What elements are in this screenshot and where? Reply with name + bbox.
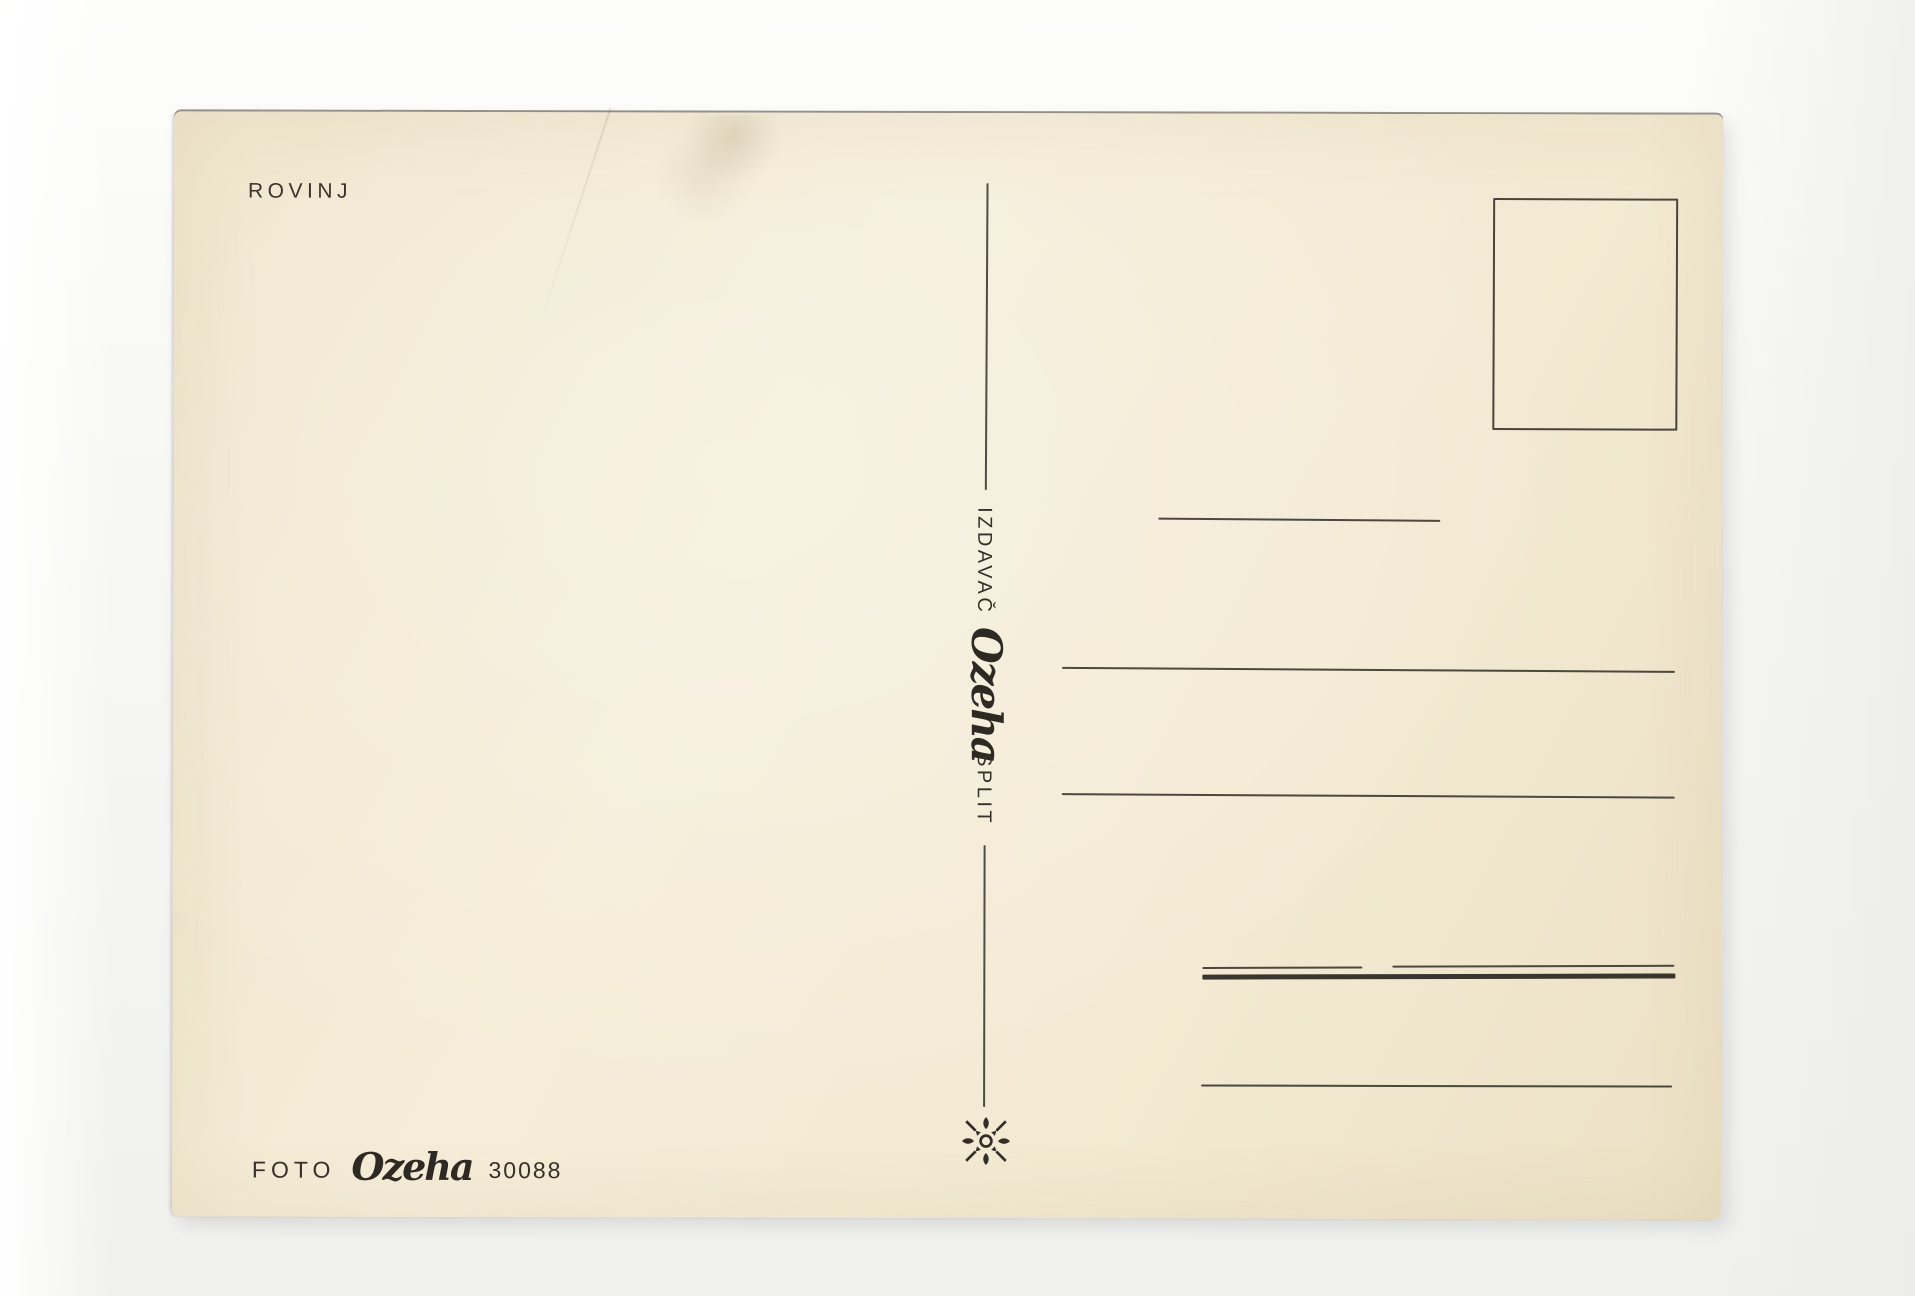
photo-credit-brand-logo: Ozeha	[351, 1144, 472, 1189]
postcard-back: ROVINJ IZDAVAČ Ozeha SPLIT	[172, 111, 1723, 1219]
divider-line-top	[985, 183, 989, 490]
scanner-background: ROVINJ IZDAVAČ Ozeha SPLIT	[0, 0, 1915, 1296]
address-line-thin-right	[1392, 965, 1674, 968]
stamp-box	[1492, 198, 1678, 431]
address-line-short	[1158, 518, 1440, 522]
photo-credit-number: 30088	[488, 1157, 562, 1184]
address-line-bottom	[1201, 1085, 1672, 1088]
address-line-2	[1062, 793, 1675, 798]
paper-crease	[538, 108, 611, 327]
paper-stain	[644, 114, 794, 224]
publisher-brand-logo: Ozeha	[962, 627, 1011, 762]
publisher-role-label: IZDAVAČ	[972, 507, 995, 615]
postcard-title: ROVINJ	[248, 180, 352, 204]
divider-line-bottom	[983, 845, 986, 1107]
address-line-thick	[1202, 973, 1675, 979]
address-line-thin-left	[1202, 966, 1362, 969]
publisher-city-label: SPLIT	[972, 753, 995, 826]
photo-credit-label: FOTO	[252, 1157, 336, 1184]
address-line-1	[1062, 667, 1675, 673]
fleuron-ornament-icon	[961, 1116, 1011, 1166]
photo-credit: FOTO Ozeha 30088	[252, 1142, 563, 1188]
